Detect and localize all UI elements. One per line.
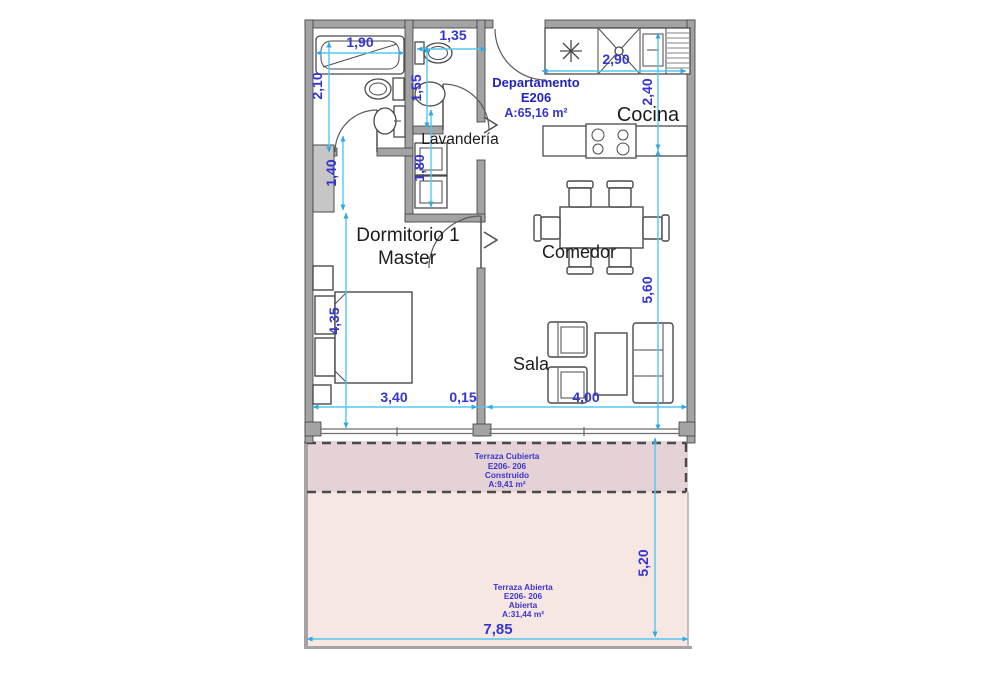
label-lavanderia: Lavandería bbox=[421, 131, 499, 148]
wall-bathroom2-right bbox=[477, 20, 485, 122]
floorplan-page: 1,90 1,35 2,90 3,40 0,15 4,00 7,85 2,10 … bbox=[0, 0, 1000, 700]
dim-bathroom2-width: 1,35 bbox=[439, 27, 466, 43]
wall-top-right bbox=[545, 20, 695, 28]
dim-kitchen-width: 2,90 bbox=[602, 51, 629, 67]
appliance-asterisk-icon bbox=[560, 40, 582, 62]
dim-bathtub-width: 1,90 bbox=[346, 34, 373, 50]
unit-name-line1: Departamento bbox=[492, 75, 579, 90]
terrace-covered-line4: A:9,41 m² bbox=[488, 479, 526, 489]
wall-bedroom-living bbox=[477, 268, 485, 436]
stove bbox=[586, 124, 636, 158]
dim-bathroom2-depth: 1,55 bbox=[408, 74, 424, 101]
dim-living-depth: 5,60 bbox=[639, 276, 655, 303]
dining-chair bbox=[643, 215, 669, 241]
label-dormitorio: Dormitorio 1 bbox=[356, 225, 459, 246]
dining-chair bbox=[534, 215, 560, 241]
wall-right bbox=[687, 20, 695, 443]
dim-wall-thickness: 0,15 bbox=[449, 389, 476, 405]
label-cocina: Cocina bbox=[617, 104, 680, 126]
wall-bathroom1-bottom-right bbox=[377, 148, 413, 156]
wall-laundry-bottom bbox=[405, 214, 485, 222]
toilet2-tank bbox=[415, 42, 424, 64]
sofa bbox=[633, 323, 673, 403]
nightstand bbox=[313, 266, 333, 290]
unit-name-line2: E206 bbox=[521, 90, 551, 105]
dim-bathroom1-depth: 2,10 bbox=[309, 72, 325, 99]
dim-terrace-depth: 5,20 bbox=[635, 549, 651, 576]
wall-stub-bottom-center bbox=[473, 424, 491, 436]
toilet-bowl bbox=[365, 79, 391, 99]
terrace-covered-line1: Terraza Cubierta bbox=[475, 451, 540, 461]
label-comedor: Comedor bbox=[542, 242, 616, 262]
dim-kitchen-depth: 2,40 bbox=[639, 78, 655, 105]
label-sala: Sala bbox=[513, 354, 550, 374]
wall-laundry-right bbox=[477, 160, 485, 222]
dim-bedroom-width: 3,40 bbox=[380, 389, 407, 405]
dim-closet-width: 1,40 bbox=[323, 159, 339, 186]
bathroom1-sink bbox=[374, 108, 396, 134]
dining-chair bbox=[607, 181, 633, 207]
pillow bbox=[315, 338, 335, 376]
terrace-left-border bbox=[304, 441, 308, 649]
terrace-open-line4: A:31,44 m² bbox=[502, 609, 544, 619]
wall-stub-bottom-right bbox=[679, 422, 695, 436]
wall-bathroom-divider bbox=[405, 20, 413, 222]
unit-area: A:65,16 m² bbox=[504, 106, 567, 120]
toilet-tank bbox=[393, 78, 404, 100]
terrace-bottom-border bbox=[304, 646, 692, 649]
label-master: Master bbox=[378, 248, 437, 269]
dining-chair bbox=[567, 181, 593, 207]
dim-bedroom-depth: 4,35 bbox=[326, 307, 342, 334]
dim-terrace-width: 7,85 bbox=[483, 621, 512, 638]
dim-living-width: 4,00 bbox=[572, 389, 599, 405]
wall-stub-bottom-left bbox=[305, 422, 321, 436]
floorplan-drawing: 1,90 1,35 2,90 3,40 0,15 4,00 7,85 2,10 … bbox=[0, 0, 1000, 700]
nightstand bbox=[313, 385, 331, 404]
dim-laundry-depth: 1,80 bbox=[411, 154, 427, 181]
coffee-table bbox=[595, 333, 627, 395]
